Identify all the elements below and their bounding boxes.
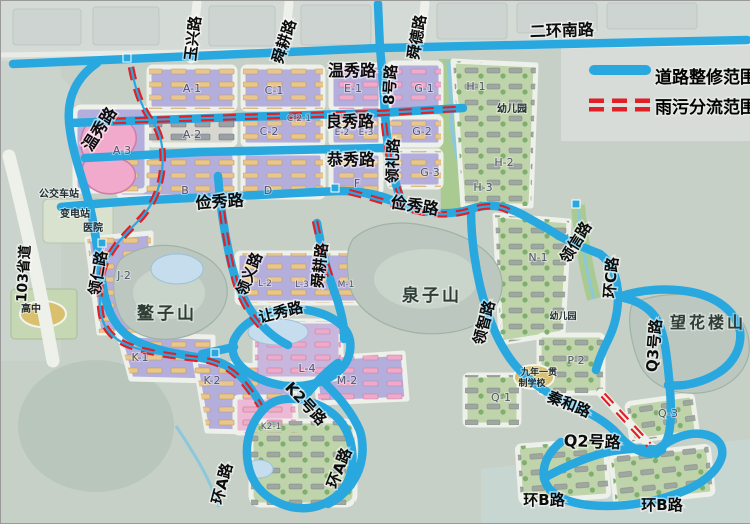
map-label-block-69: Q-3 [658, 407, 678, 420]
map-label-mountain-28: 鳌子山 [137, 303, 197, 324]
map-label-poi-38: 制学校 [518, 377, 546, 389]
legend-road-repair-swatch [589, 65, 651, 75]
map-label-block-45: C-2 [260, 125, 279, 138]
map-label-road-23: 环B路 [523, 491, 565, 509]
map-label-block-47: E-1 [344, 82, 362, 95]
map-label-poi-37: 九年一贯 [520, 366, 557, 378]
map-label-mountain-30: 望花楼山 [670, 313, 746, 332]
map-label-block-48: E-2 [335, 128, 350, 138]
map-label-block-63: L-4 [299, 362, 316, 375]
map-label-block-68: Q-1 [491, 391, 511, 404]
map-label-block-60: K2-1 [261, 422, 282, 432]
map-label-road-24: 环B路 [641, 496, 683, 514]
map-label-road-10: 俭秀路 [195, 190, 245, 212]
map-label-poi-35: 幼儿园 [497, 102, 527, 115]
map-label-block-51: G-1 [414, 82, 434, 95]
planning-map-screenshot: 玉兴路舜耕路舜德路二环南路温秀路8号路良秀路恭秀路领礼路温秀路俭秀路俭秀路领仁路… [0, 0, 750, 524]
map-label-block-39: A-1 [183, 82, 201, 95]
legend-drainage-label: 雨污分流范围 [655, 97, 750, 118]
map-label-poi-31: 公交车站 [39, 187, 79, 200]
map-label-block-58: K-1 [131, 351, 148, 364]
map-label-poi-33: 医院 [83, 221, 103, 234]
map-label-block-42: B [181, 184, 189, 197]
map-label-block-64: M-1 [338, 280, 355, 290]
map-label-block-40: A-2 [183, 128, 201, 141]
map-label-block-66: N-1 [528, 251, 547, 264]
map-label-poi-34: 高中 [21, 302, 41, 315]
map-label-block-49: E-3 [359, 128, 374, 138]
map-label-block-62: L-3 [295, 280, 309, 290]
map-label-block-65: M-2 [337, 374, 357, 387]
map-label-block-56: H-3 [473, 181, 492, 194]
map-label-block-61: L-2 [258, 279, 272, 289]
map-label-road-3: 二环南路 [529, 20, 595, 41]
map-label-block-53: G-3 [420, 166, 440, 179]
map-label-block-54: H-1 [466, 80, 485, 93]
map-label-block-57: J-2 [116, 269, 131, 282]
map-label-road-22: Q2号路 [564, 431, 622, 452]
map-label-poi-36: 幼儿园 [549, 310, 576, 322]
map-label-road-8: 领礼路 [383, 137, 403, 185]
map-label-block-46: D [264, 184, 272, 197]
map-label-road-7: 恭秀路 [326, 150, 376, 169]
map-label-road-5: 8号路 [380, 63, 401, 106]
map-label-block-67: P-2 [567, 354, 584, 367]
map-label-road-19: 环C路 [600, 255, 622, 298]
map-label-block-44: C-2-1 [287, 114, 311, 124]
map-label-block-55: H-2 [494, 156, 513, 169]
map-label-block-43: C-1 [265, 84, 284, 97]
planning-map: 玉兴路舜耕路舜德路二环南路温秀路8号路良秀路恭秀路领礼路温秀路俭秀路俭秀路领仁路… [1, 1, 750, 523]
map-label-block-50: F [354, 177, 360, 190]
map-label-road-4: 温秀路 [327, 61, 377, 80]
map-label-block-59: K-2 [203, 374, 220, 387]
map-label-block-41: A-3 [113, 144, 131, 157]
map-label-block-52: G-2 [412, 125, 432, 138]
legend-road-repair-label: 道路整修范围 [655, 67, 750, 88]
map-label-mountain-29: 泉子山 [401, 285, 462, 306]
map-label-poi-32: 变电站 [60, 207, 90, 220]
